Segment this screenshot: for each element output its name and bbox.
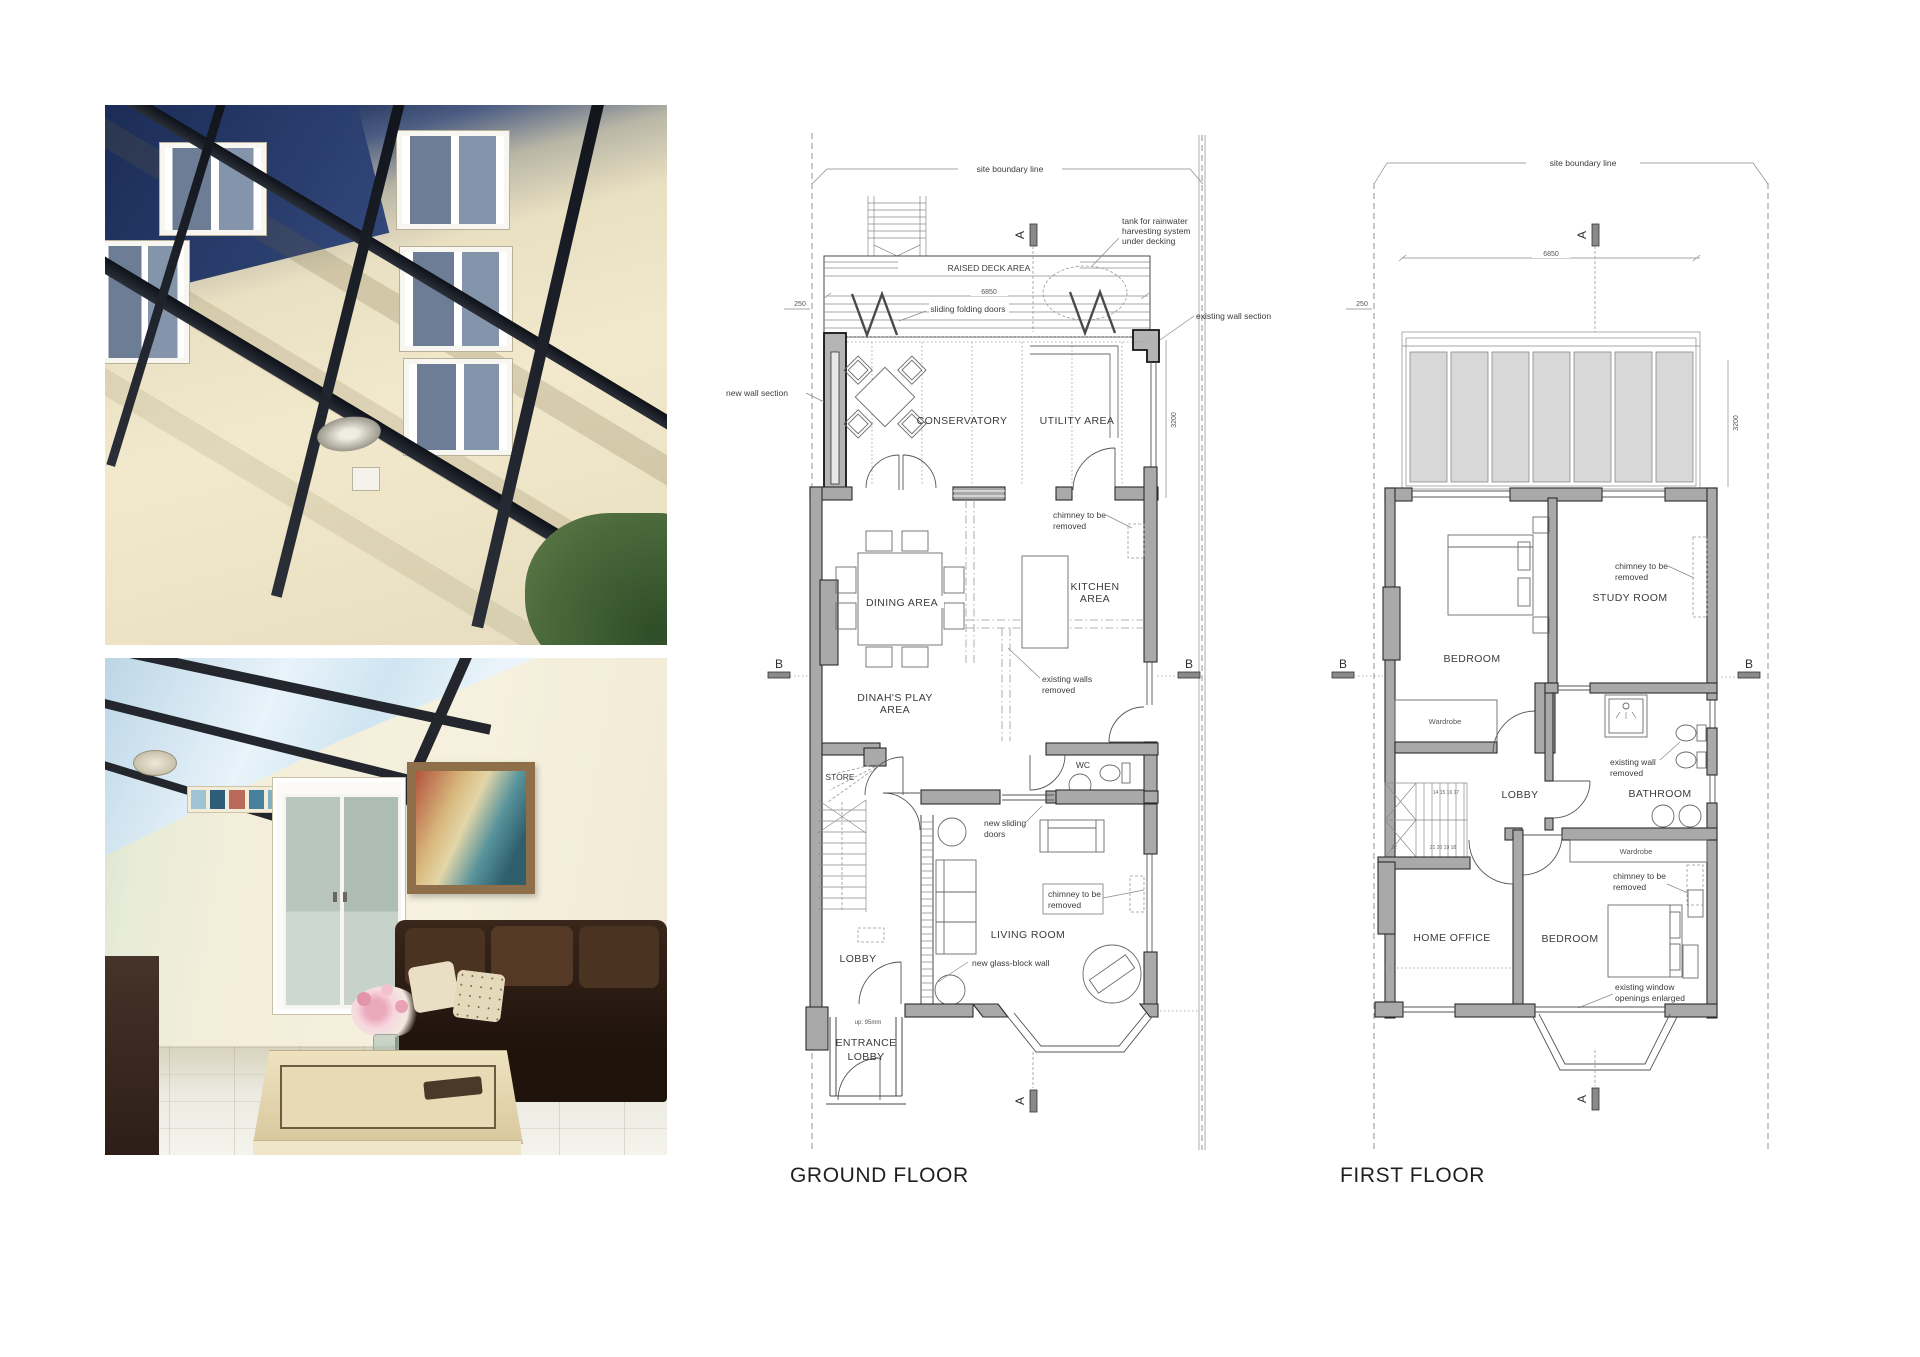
- label-utility: UTILITY AREA: [1040, 415, 1115, 427]
- dim-3200-ff: 3200: [1733, 415, 1740, 431]
- label-window-note-2: openings enlarged: [1615, 993, 1685, 1003]
- label-up-note: up: 95mm: [855, 1020, 882, 1026]
- existing-walls-note: existing walls removed: [1008, 648, 1092, 695]
- section-marker-a-bottom: A: [1013, 1052, 1037, 1112]
- label-chimney-2: removed: [1615, 572, 1648, 582]
- label-home-office: HOME OFFICE: [1413, 932, 1490, 944]
- label-sliding-1: new sliding: [984, 818, 1026, 828]
- label-chimney-1: chimney to be: [1613, 871, 1666, 881]
- radiator-dashed: [858, 928, 884, 942]
- dim-250-ff: 250: [1356, 301, 1368, 308]
- label-site-boundary-ff: site boundary line: [1550, 158, 1617, 168]
- dim-250: 250: [794, 301, 806, 308]
- label-lobby-ff: LOBBY: [1501, 789, 1538, 801]
- label-chimney-2: removed: [1053, 521, 1086, 531]
- label-kitchen-1: KITCHEN: [1071, 581, 1120, 593]
- label-wc: WC: [1076, 760, 1090, 770]
- label-new-wall-section: new wall section: [726, 388, 788, 398]
- first-floor-title: FIRST FLOOR: [1340, 1164, 1485, 1187]
- new-sliding-doors-note: new sliding doors: [984, 806, 1042, 839]
- stairs-ground: [818, 800, 866, 912]
- label-sliding-doors: sliding folding doors: [930, 304, 1005, 314]
- label-exwalls-2: removed: [1042, 685, 1075, 695]
- entrance-walls: [806, 1004, 973, 1104]
- section-marker-b-left-ff: B: [1332, 657, 1383, 678]
- label-marker-a: A: [1575, 231, 1589, 239]
- label-marker-b: B: [775, 657, 783, 671]
- label-window-note-1: existing window: [1615, 982, 1675, 992]
- label-raised-deck: RAISED DECK AREA: [948, 263, 1031, 273]
- label-chimney-1: chimney to be: [1053, 510, 1106, 520]
- bay-window-ground: [973, 1004, 1199, 1052]
- chimney-note-kitchen: chimney to be removed: [1053, 510, 1144, 558]
- lobby-door: [859, 962, 901, 1004]
- glazed-roof: [1402, 332, 1700, 489]
- label-study: STUDY ROOM: [1593, 592, 1668, 604]
- label-chimney-2: removed: [1048, 900, 1081, 910]
- label-wardrobe-1: Wardrobe: [1429, 717, 1462, 726]
- leader-new-wall: [806, 393, 824, 402]
- label-tank-3: under decking: [1122, 236, 1176, 246]
- label-marker-a: A: [1013, 231, 1027, 239]
- dim-6850: 6850: [981, 289, 997, 296]
- leader-existing-wall: [1160, 316, 1194, 340]
- bedroom-front: BEDROOM Wardrobe: [1395, 517, 1555, 753]
- label-marker-b: B: [1745, 657, 1753, 671]
- kitchen-island: [1022, 556, 1068, 648]
- chimney-note-living: chimney to be removed: [1043, 876, 1144, 914]
- section-marker-b-right: B: [1157, 657, 1200, 678]
- label-play-2: AREA: [880, 704, 910, 716]
- label-chimney-1: chimney to be: [1615, 561, 1668, 571]
- label-tank-1: tank for rainwater: [1122, 216, 1188, 226]
- label-store: STORE: [825, 772, 854, 782]
- stair-numbers-lower: 21 20 19 18: [1430, 845, 1457, 851]
- ground-floor-plan: site boundary line RAISED DECK AREA 6850…: [726, 133, 1271, 1187]
- label-tank-2: harvesting system: [1122, 226, 1191, 236]
- label-chimney-1: chimney to be: [1048, 889, 1101, 899]
- label-entrance-2: LOBBY: [847, 1051, 884, 1063]
- label-bathroom: BATHROOM: [1628, 788, 1691, 800]
- ground-floor-title: GROUND FLOOR: [790, 1164, 969, 1187]
- section-marker-a-top-ff: A: [1575, 224, 1599, 332]
- dim-6850-ff: 6850: [1543, 251, 1559, 258]
- page: site boundary line RAISED DECK AREA 6850…: [0, 0, 1920, 1357]
- folding-door-right: [1070, 292, 1115, 333]
- section-marker-a-bottom-ff: A: [1575, 1050, 1599, 1110]
- leader-glass-block: [938, 962, 968, 982]
- store-walls: [822, 743, 920, 830]
- first-floor-plan: site boundary line 6850 250 3200 A: [1332, 158, 1768, 1187]
- label-marker-a: A: [1575, 1095, 1589, 1103]
- section-marker-a-top: A: [1013, 224, 1037, 332]
- glass-block-wall: [921, 822, 933, 997]
- deck-stair: [868, 196, 926, 256]
- section-marker-b-right-ff: B: [1717, 657, 1760, 678]
- conservatory-south-wall: [810, 448, 1158, 500]
- stair-number-22: 22: [1391, 845, 1397, 851]
- label-site-boundary: site boundary line: [977, 164, 1044, 174]
- label-entrance-1: ENTRANCE: [836, 1037, 897, 1049]
- label-kitchen-2: AREA: [1080, 593, 1110, 605]
- label-chimney-2: removed: [1613, 882, 1646, 892]
- section-marker-b-left: B: [768, 657, 810, 678]
- label-wardrobe-2: Wardrobe: [1620, 847, 1653, 856]
- bedroom-rear: Wardrobe chimney to be removed BEDROOM e…: [1522, 835, 1707, 1008]
- label-living-room: LIVING ROOM: [991, 929, 1065, 941]
- floor-plans: site boundary line RAISED DECK AREA 6850…: [0, 0, 1920, 1357]
- label-bedroom-front: BEDROOM: [1443, 653, 1500, 665]
- dim-3200: 3200: [1171, 412, 1178, 428]
- stair-numbers-upper: 14 15 16 17: [1433, 790, 1460, 796]
- folding-door-left: [852, 294, 897, 335]
- label-lobby: LOBBY: [839, 953, 876, 965]
- label-play-1: DINAH'S PLAY: [857, 692, 932, 704]
- label-bedroom-rear: BEDROOM: [1541, 933, 1598, 945]
- label-dining: DINING AREA: [866, 597, 938, 609]
- label-sliding-2: doors: [984, 829, 1005, 839]
- label-exwall-2: removed: [1610, 768, 1643, 778]
- living-furniture: [935, 818, 1141, 1005]
- ff-south-wall: [1403, 1004, 1717, 1070]
- label-marker-a: A: [1013, 1097, 1027, 1105]
- label-glass-block: new glass-block wall: [972, 958, 1050, 968]
- label-marker-b: B: [1339, 657, 1347, 671]
- label-exwall-1: existing wall: [1610, 757, 1656, 767]
- study-room: STUDY ROOM chimney to be removed: [1593, 537, 1707, 617]
- label-exwalls-1: existing walls: [1042, 674, 1092, 684]
- label-conservatory: CONSERVATORY: [917, 415, 1008, 427]
- label-existing-wall-section: existing wall section: [1196, 311, 1271, 321]
- label-marker-b: B: [1185, 657, 1193, 671]
